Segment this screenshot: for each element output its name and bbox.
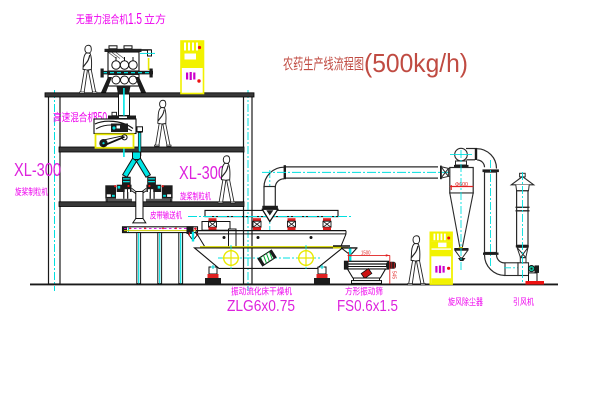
svg-text:引风机: 引风机 [513,296,534,307]
svg-text:旋风除尘器: 旋风除尘器 [448,296,483,307]
svg-text:振动流化床干燥机: 振动流化床干燥机 [231,286,292,297]
svg-text:高速混合机: 高速混合机 [53,110,96,124]
svg-text:(500kg/h): (500kg/h) [364,48,468,78]
svg-text:方形振动筛: 方形振动筛 [345,286,383,297]
svg-text:Φ600: Φ600 [455,182,468,188]
svg-text:1.5: 1.5 [128,11,142,28]
svg-text:XL-300: XL-300 [179,163,226,183]
svg-text:FS0.6x1.5: FS0.6x1.5 [337,298,398,315]
svg-text:545: 545 [390,271,396,279]
svg-text:立方: 立方 [144,12,166,26]
svg-text:ZLG6x0.75: ZLG6x0.75 [227,298,295,315]
svg-text:农药生产线流程图: 农药生产线流程图 [283,56,364,73]
svg-text:无重力混合机: 无重力混合机 [76,12,128,26]
svg-text:皮带输送机: 皮带输送机 [150,210,182,221]
svg-text:1500: 1500 [361,250,371,256]
svg-text:XL-300: XL-300 [14,160,61,180]
svg-text:旋桨制粒机: 旋桨制粒机 [180,191,211,202]
svg-text:旋桨制粒机: 旋桨制粒机 [15,186,48,197]
